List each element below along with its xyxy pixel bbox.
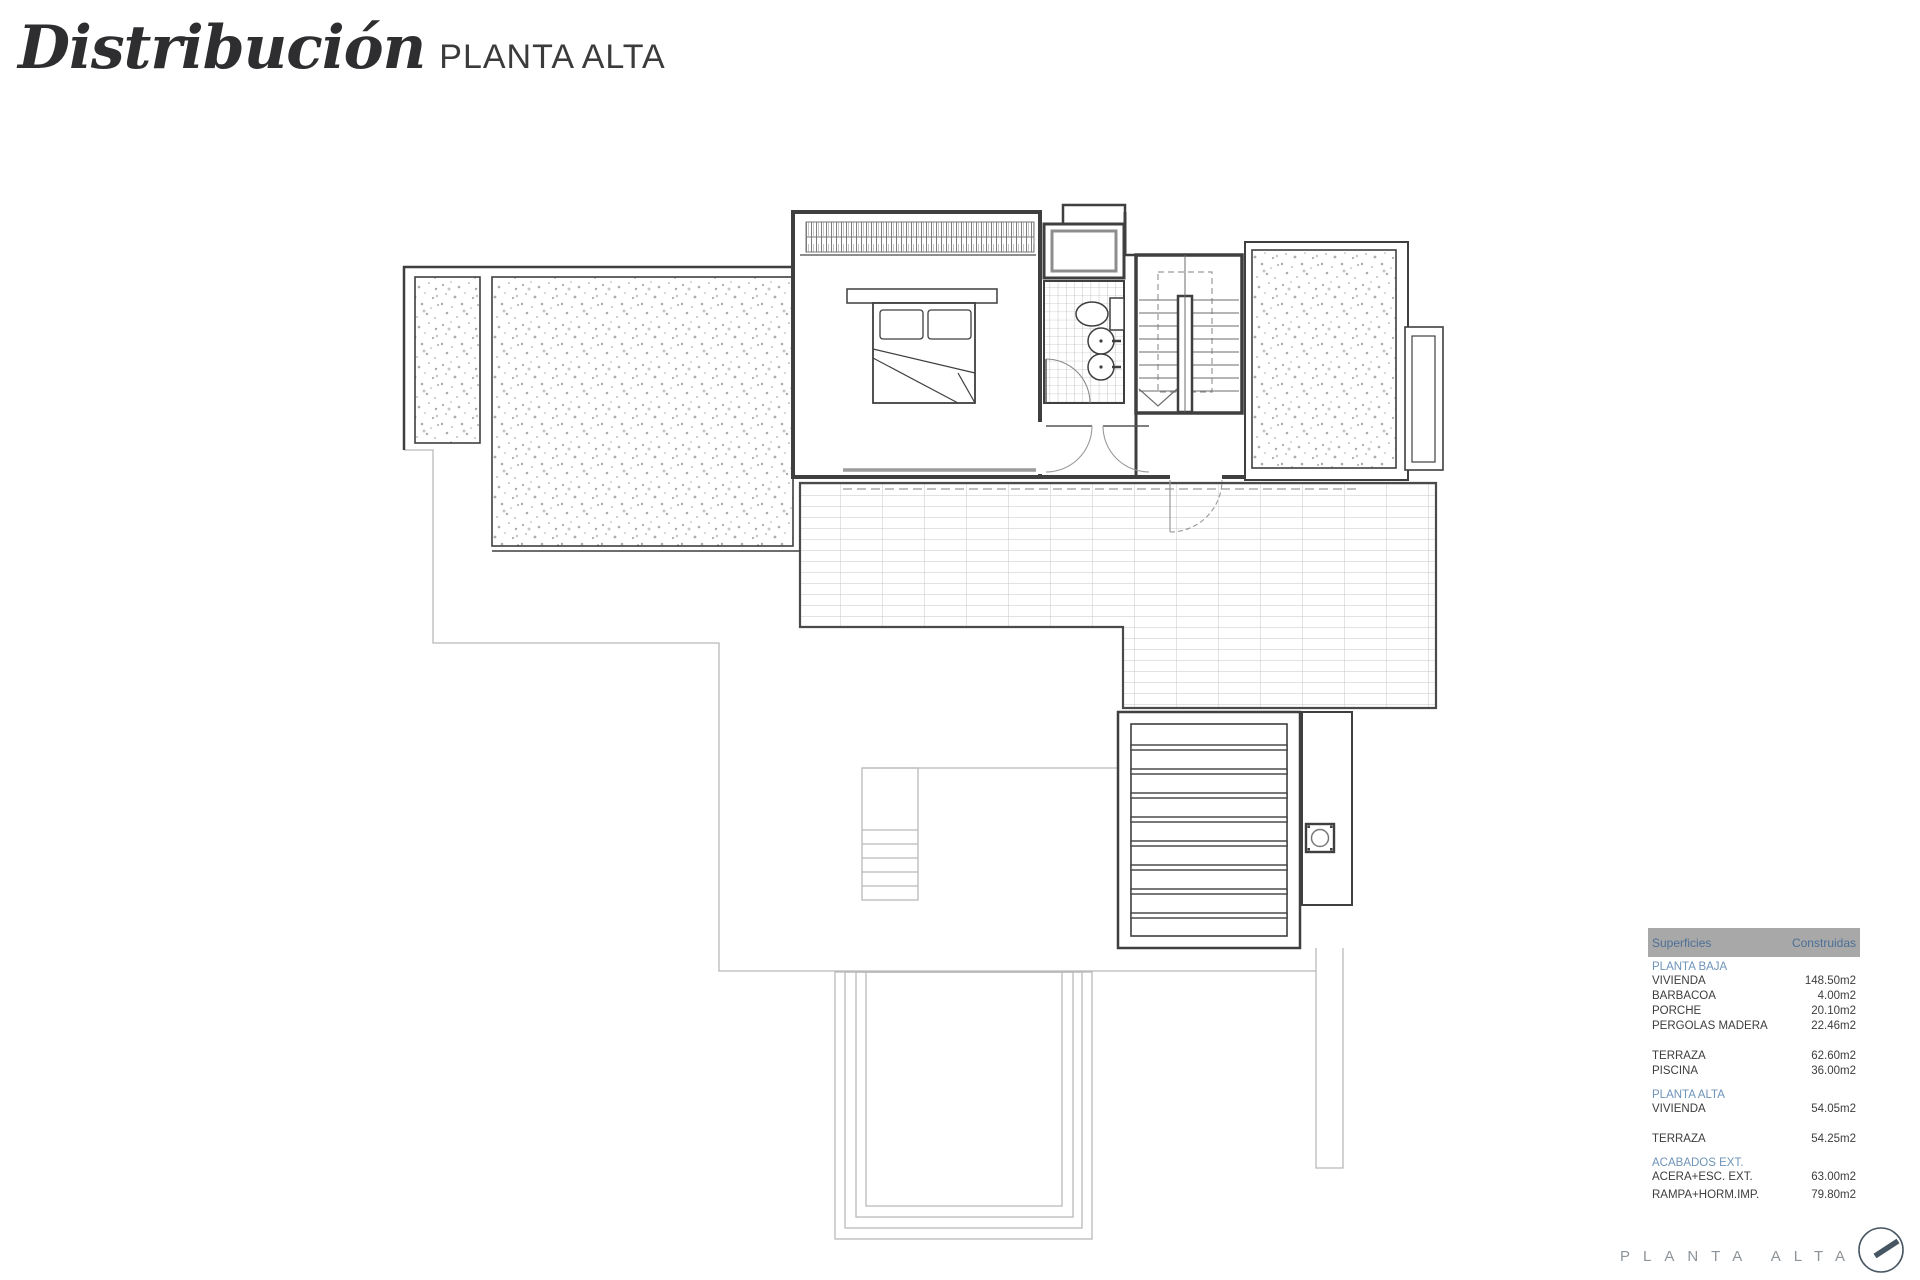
areas-group: PLANTA ALTAVIVIENDA54.05m2TERRAZA54.25m2: [1648, 1089, 1860, 1147]
floor-plan-drawing: [0, 0, 1920, 1280]
area-name: VIVIENDA: [1652, 1102, 1706, 1117]
gravel-roof-right: [1252, 250, 1396, 468]
area-name: ACERA+ESC. EXT.: [1652, 1170, 1753, 1185]
areas-group-label: PLANTA BAJA: [1648, 961, 1860, 974]
area-value: 4.00m2: [1818, 989, 1856, 1004]
area-name: TERRAZA: [1652, 1049, 1706, 1064]
planter: [1405, 327, 1443, 470]
areas-row: VIVIENDA148.50m2: [1648, 974, 1860, 989]
area-value: 22.46m2: [1811, 1019, 1856, 1034]
area-value: 79.80m2: [1811, 1188, 1856, 1203]
footer: PLANTA ALTA: [1620, 1234, 1908, 1278]
bedroom: [793, 212, 1044, 477]
area-value: 62.60m2: [1811, 1049, 1856, 1064]
gravel-roof-small: [415, 277, 480, 443]
left-roof-region: [404, 267, 800, 551]
areas-table-body: PLANTA BAJAVIVIENDA148.50m2BARBACOA4.00m…: [1648, 961, 1860, 1203]
areas-row: PORCHE20.10m2: [1648, 1004, 1860, 1019]
north-compass-icon: [1854, 1224, 1908, 1278]
areas-group-label: ACABADOS EXT.: [1648, 1157, 1860, 1170]
area-value: 36.00m2: [1811, 1064, 1856, 1079]
areas-row: PISCINA36.00m2: [1648, 1064, 1860, 1079]
staircase: [1125, 212, 1242, 477]
areas-row: TERRAZA54.25m2: [1648, 1132, 1860, 1147]
bathroom: [1044, 281, 1124, 403]
areas-row: ACERA+ESC. EXT.63.00m2: [1648, 1170, 1860, 1185]
area-value: 63.00m2: [1811, 1170, 1856, 1185]
area-name: PORCHE: [1652, 1004, 1701, 1019]
areas-row: BARBACOA4.00m2: [1648, 989, 1860, 1004]
pergola: [1118, 712, 1352, 948]
area-name: BARBACOA: [1652, 989, 1716, 1004]
area-name: TERRAZA: [1652, 1132, 1706, 1147]
interior-stair-below: [862, 768, 1118, 900]
areas-table: Superficies Construidas PLANTA BAJAVIVIE…: [1648, 928, 1860, 1203]
terrace: [800, 483, 1436, 708]
areas-row: VIVIENDA54.05m2: [1648, 1102, 1860, 1117]
pool-outline: [835, 972, 1092, 1239]
areas-table-header: Superficies Construidas: [1648, 928, 1860, 957]
area-name: VIVIENDA: [1652, 974, 1706, 989]
bedroom-door: [1046, 426, 1092, 472]
shower: [1044, 205, 1125, 278]
areas-row: PERGOLAS MADERA22.46m2: [1648, 1019, 1860, 1034]
column-detail: [1306, 824, 1334, 852]
pergola-side-strip: [1302, 712, 1352, 905]
area-value: 20.10m2: [1811, 1004, 1856, 1019]
right-roof-region: [1245, 242, 1443, 480]
areas-group: PLANTA BAJAVIVIENDA148.50m2BARBACOA4.00m…: [1648, 961, 1860, 1079]
areas-col-label: Superficies: [1652, 936, 1711, 950]
areas-row: TERRAZA62.60m2: [1648, 1049, 1860, 1064]
areas-col-value: Construidas: [1792, 936, 1856, 950]
plan-name-label: PLANTA ALTA: [1620, 1248, 1858, 1265]
areas-group-label: PLANTA ALTA: [1648, 1089, 1860, 1102]
area-value: 54.25m2: [1811, 1132, 1856, 1147]
area-name: PISCINA: [1652, 1064, 1698, 1079]
area-value: 54.05m2: [1811, 1102, 1856, 1117]
area-name: PERGOLAS MADERA: [1652, 1019, 1768, 1034]
areas-group: ACABADOS EXT.ACERA+ESC. EXT.63.00m2RAMPA…: [1648, 1157, 1860, 1203]
ramp-outline: [1316, 948, 1343, 1168]
gravel-roof-large: [492, 277, 793, 546]
landing-door: [1103, 426, 1149, 472]
page: Distribución PLANTA ALTA: [0, 0, 1920, 1280]
area-value: 148.50m2: [1805, 974, 1856, 989]
terrace-deck: [800, 483, 1436, 708]
area-name: RAMPA+HORM.IMP.: [1652, 1188, 1759, 1203]
areas-row: RAMPA+HORM.IMP.79.80m2: [1648, 1188, 1860, 1203]
